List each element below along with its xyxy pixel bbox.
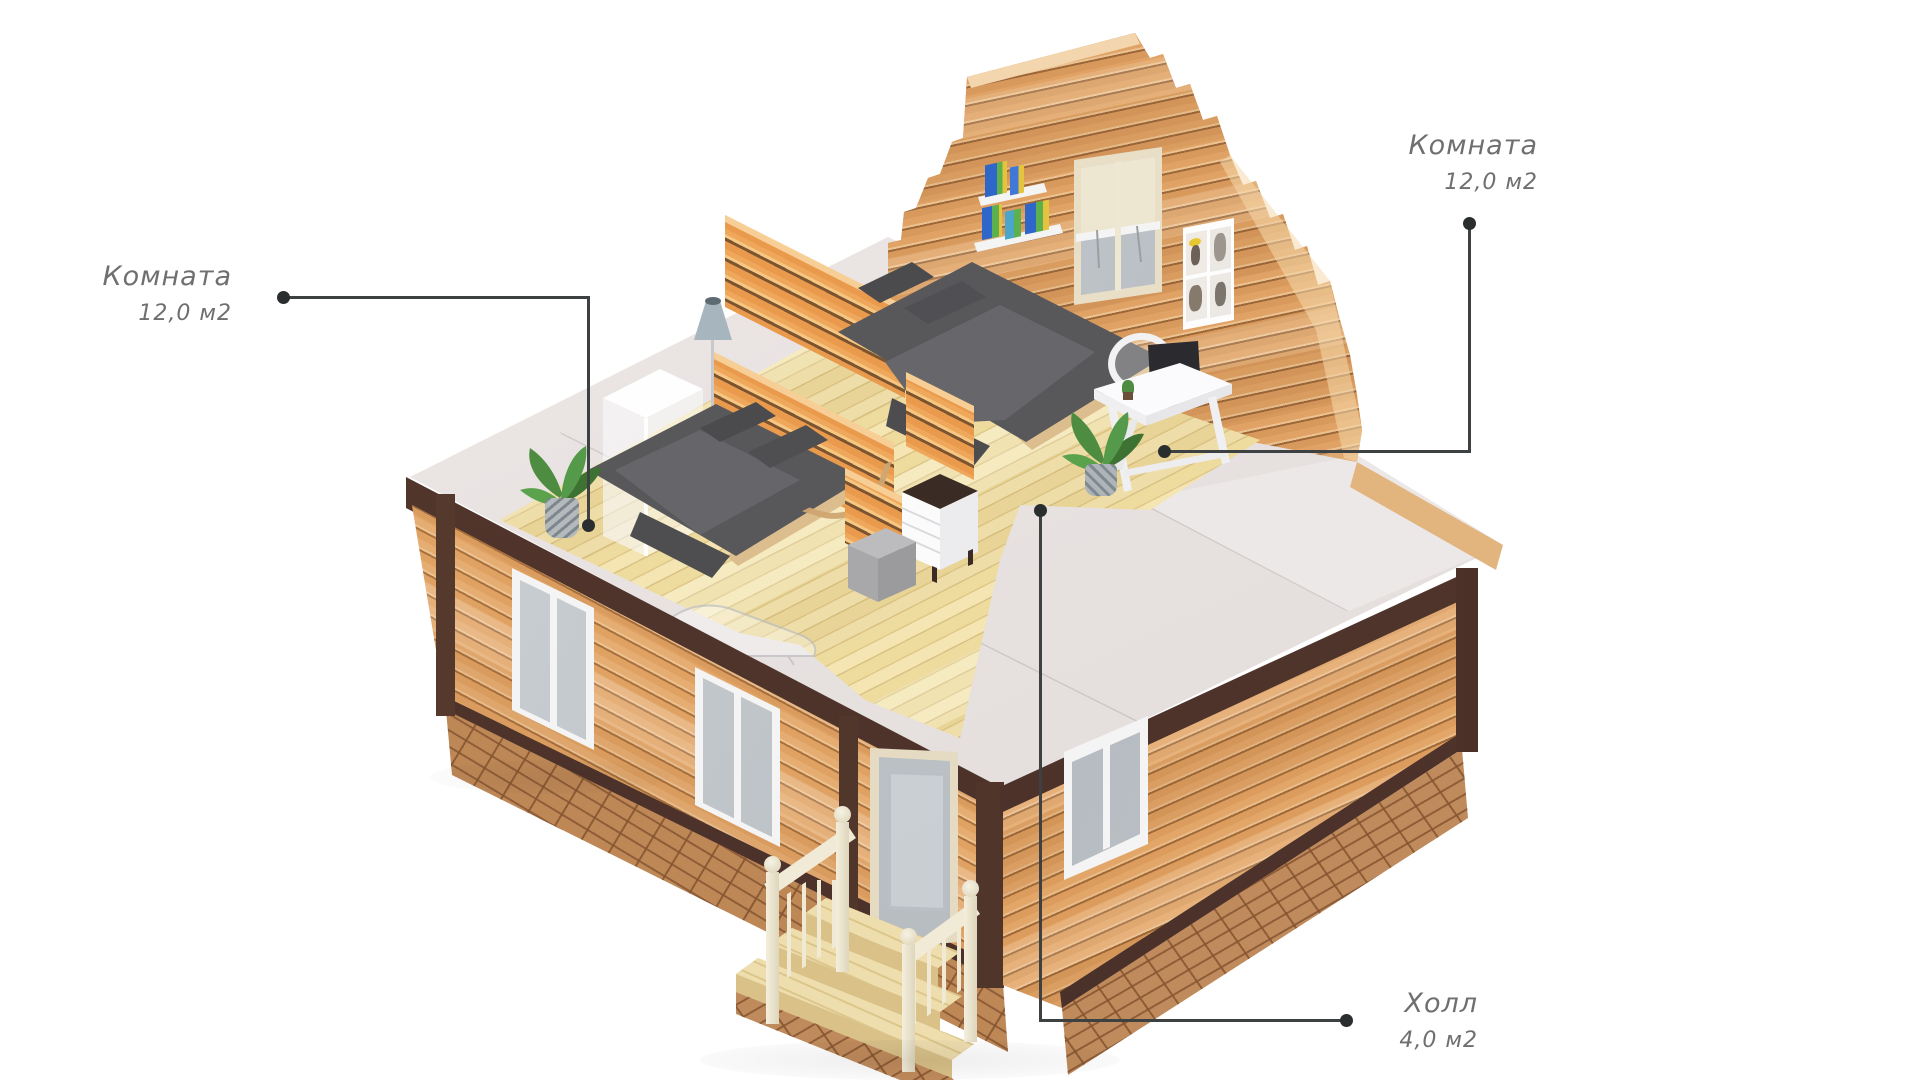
leader-room-right-v <box>1468 223 1471 453</box>
label-hall: Холл 4,0 м2 <box>1278 988 1478 1053</box>
house-cutaway-illustration: Комната 12,0 м2 Комната 12,0 м2 Холл 4,0… <box>0 0 1920 1080</box>
railing-balusters <box>772 880 846 1000</box>
room-left-area: 12,0 м2 <box>32 301 232 326</box>
floor-lamp-base <box>702 412 722 418</box>
books <box>1010 165 1024 196</box>
leader-hall-v <box>1039 510 1042 1022</box>
railing-post <box>964 896 977 1042</box>
hall-area: 4,0 м2 <box>1278 1028 1478 1053</box>
animal <box>1189 284 1202 313</box>
railing-post-ball <box>900 928 917 945</box>
plant-pot <box>1085 464 1117 496</box>
railing-post <box>836 822 849 972</box>
poster-photo-cat <box>1210 272 1231 318</box>
door-panel <box>888 771 946 911</box>
books <box>1005 208 1021 239</box>
room-right-area: 12,0 м2 <box>1338 170 1538 195</box>
label-room-left: Комната 12,0 м2 <box>32 261 232 326</box>
room-left-title: Комната <box>32 261 232 292</box>
label-room-right: Комната 12,0 м2 <box>1338 130 1538 195</box>
leader-room-right-h <box>1164 450 1471 453</box>
leader-room-left-v <box>587 296 590 526</box>
poster-photo-donkey <box>1210 226 1231 272</box>
books <box>982 204 1002 240</box>
books <box>1025 199 1049 234</box>
books <box>985 161 1007 198</box>
ground-shadow <box>430 760 670 794</box>
poster-photo-dog-hat <box>1186 230 1207 276</box>
railing-post-ball <box>962 880 979 897</box>
leader-hall-dot <box>1034 504 1047 517</box>
animal <box>1191 244 1200 266</box>
railing-post <box>766 872 779 1024</box>
leader-room-right-dot <box>1158 445 1171 458</box>
animal <box>1215 281 1226 307</box>
leader-room-right-dot <box>1463 217 1476 230</box>
ground-shadow <box>700 1040 1120 1080</box>
hall-title: Холл <box>1278 988 1478 1019</box>
leader-room-left-dot <box>582 519 595 532</box>
floor-lamp-top <box>705 297 721 305</box>
leader-room-left-h <box>283 296 590 299</box>
bed1-bench-rail <box>802 439 892 533</box>
railing-post-ball <box>764 856 781 873</box>
poster-photo-dog <box>1186 276 1207 322</box>
desk-chair-backrest <box>1104 329 1178 398</box>
railing-post-ball <box>834 806 851 823</box>
leader-room-left-dot <box>277 291 290 304</box>
room-right-title: Комната <box>1338 130 1538 161</box>
ghost-lounger <box>648 562 838 667</box>
animal <box>1214 232 1226 262</box>
plant-pot <box>545 498 579 538</box>
